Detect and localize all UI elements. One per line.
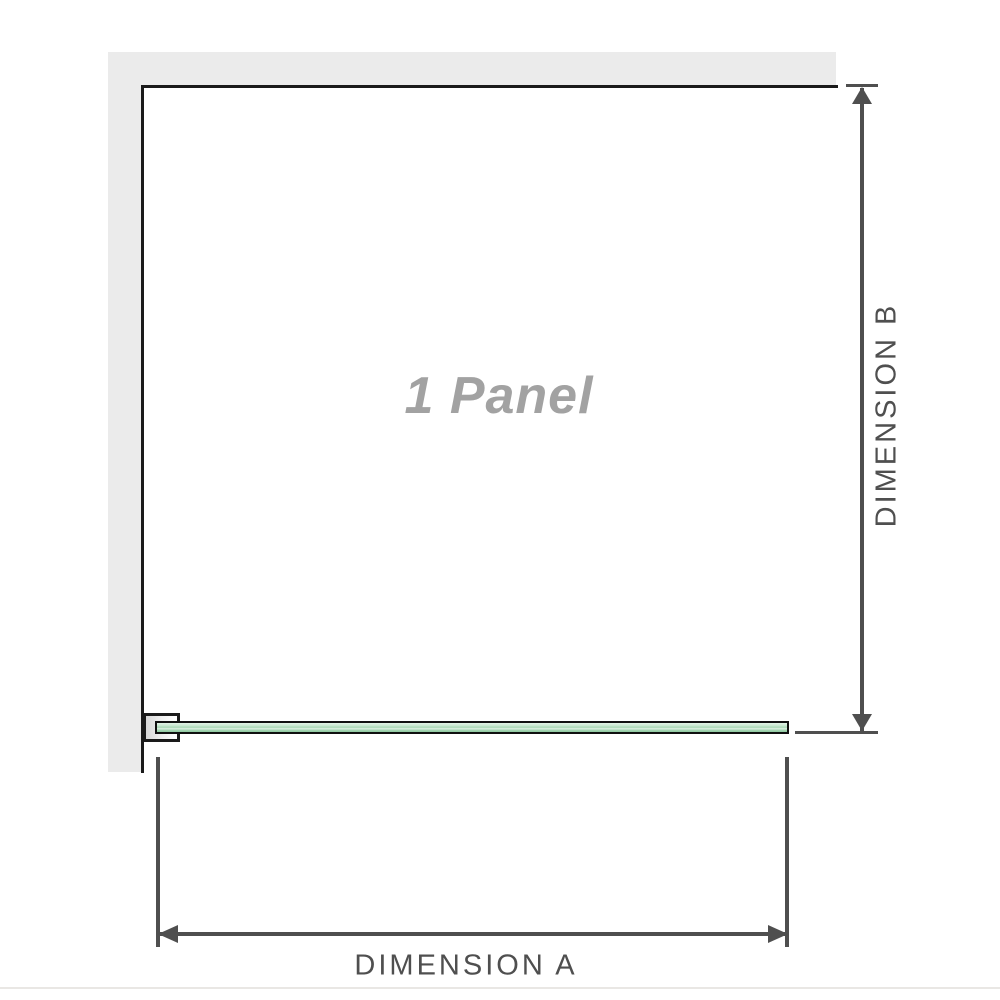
dimension-b-label: DIMENSION B [871,303,904,528]
wall-inner-edge-left [141,85,144,773]
dimension-a-line [160,932,786,936]
dimension-b-tick-bottom [795,731,878,734]
glass-panel [155,721,789,734]
dimension-a-extension-left [156,757,160,947]
dimension-a-extension-right [785,757,789,947]
dimension-b-line [860,88,864,731]
arrow-right-icon [768,925,788,943]
panel-count-label: 1 Panel [404,366,593,426]
wall-left [108,52,143,772]
shower-panel-diagram: 1 Panel DIMENSION B DIMENSION A [0,0,1000,1000]
dimension-a-label: DIMENSION A [354,950,577,983]
footer-divider-line [0,987,1000,989]
arrow-down-icon [852,714,872,731]
wall-top [108,52,836,86]
arrow-up-icon [852,87,872,104]
wall-inner-edge-top [141,85,838,88]
arrow-left-icon [158,925,178,943]
